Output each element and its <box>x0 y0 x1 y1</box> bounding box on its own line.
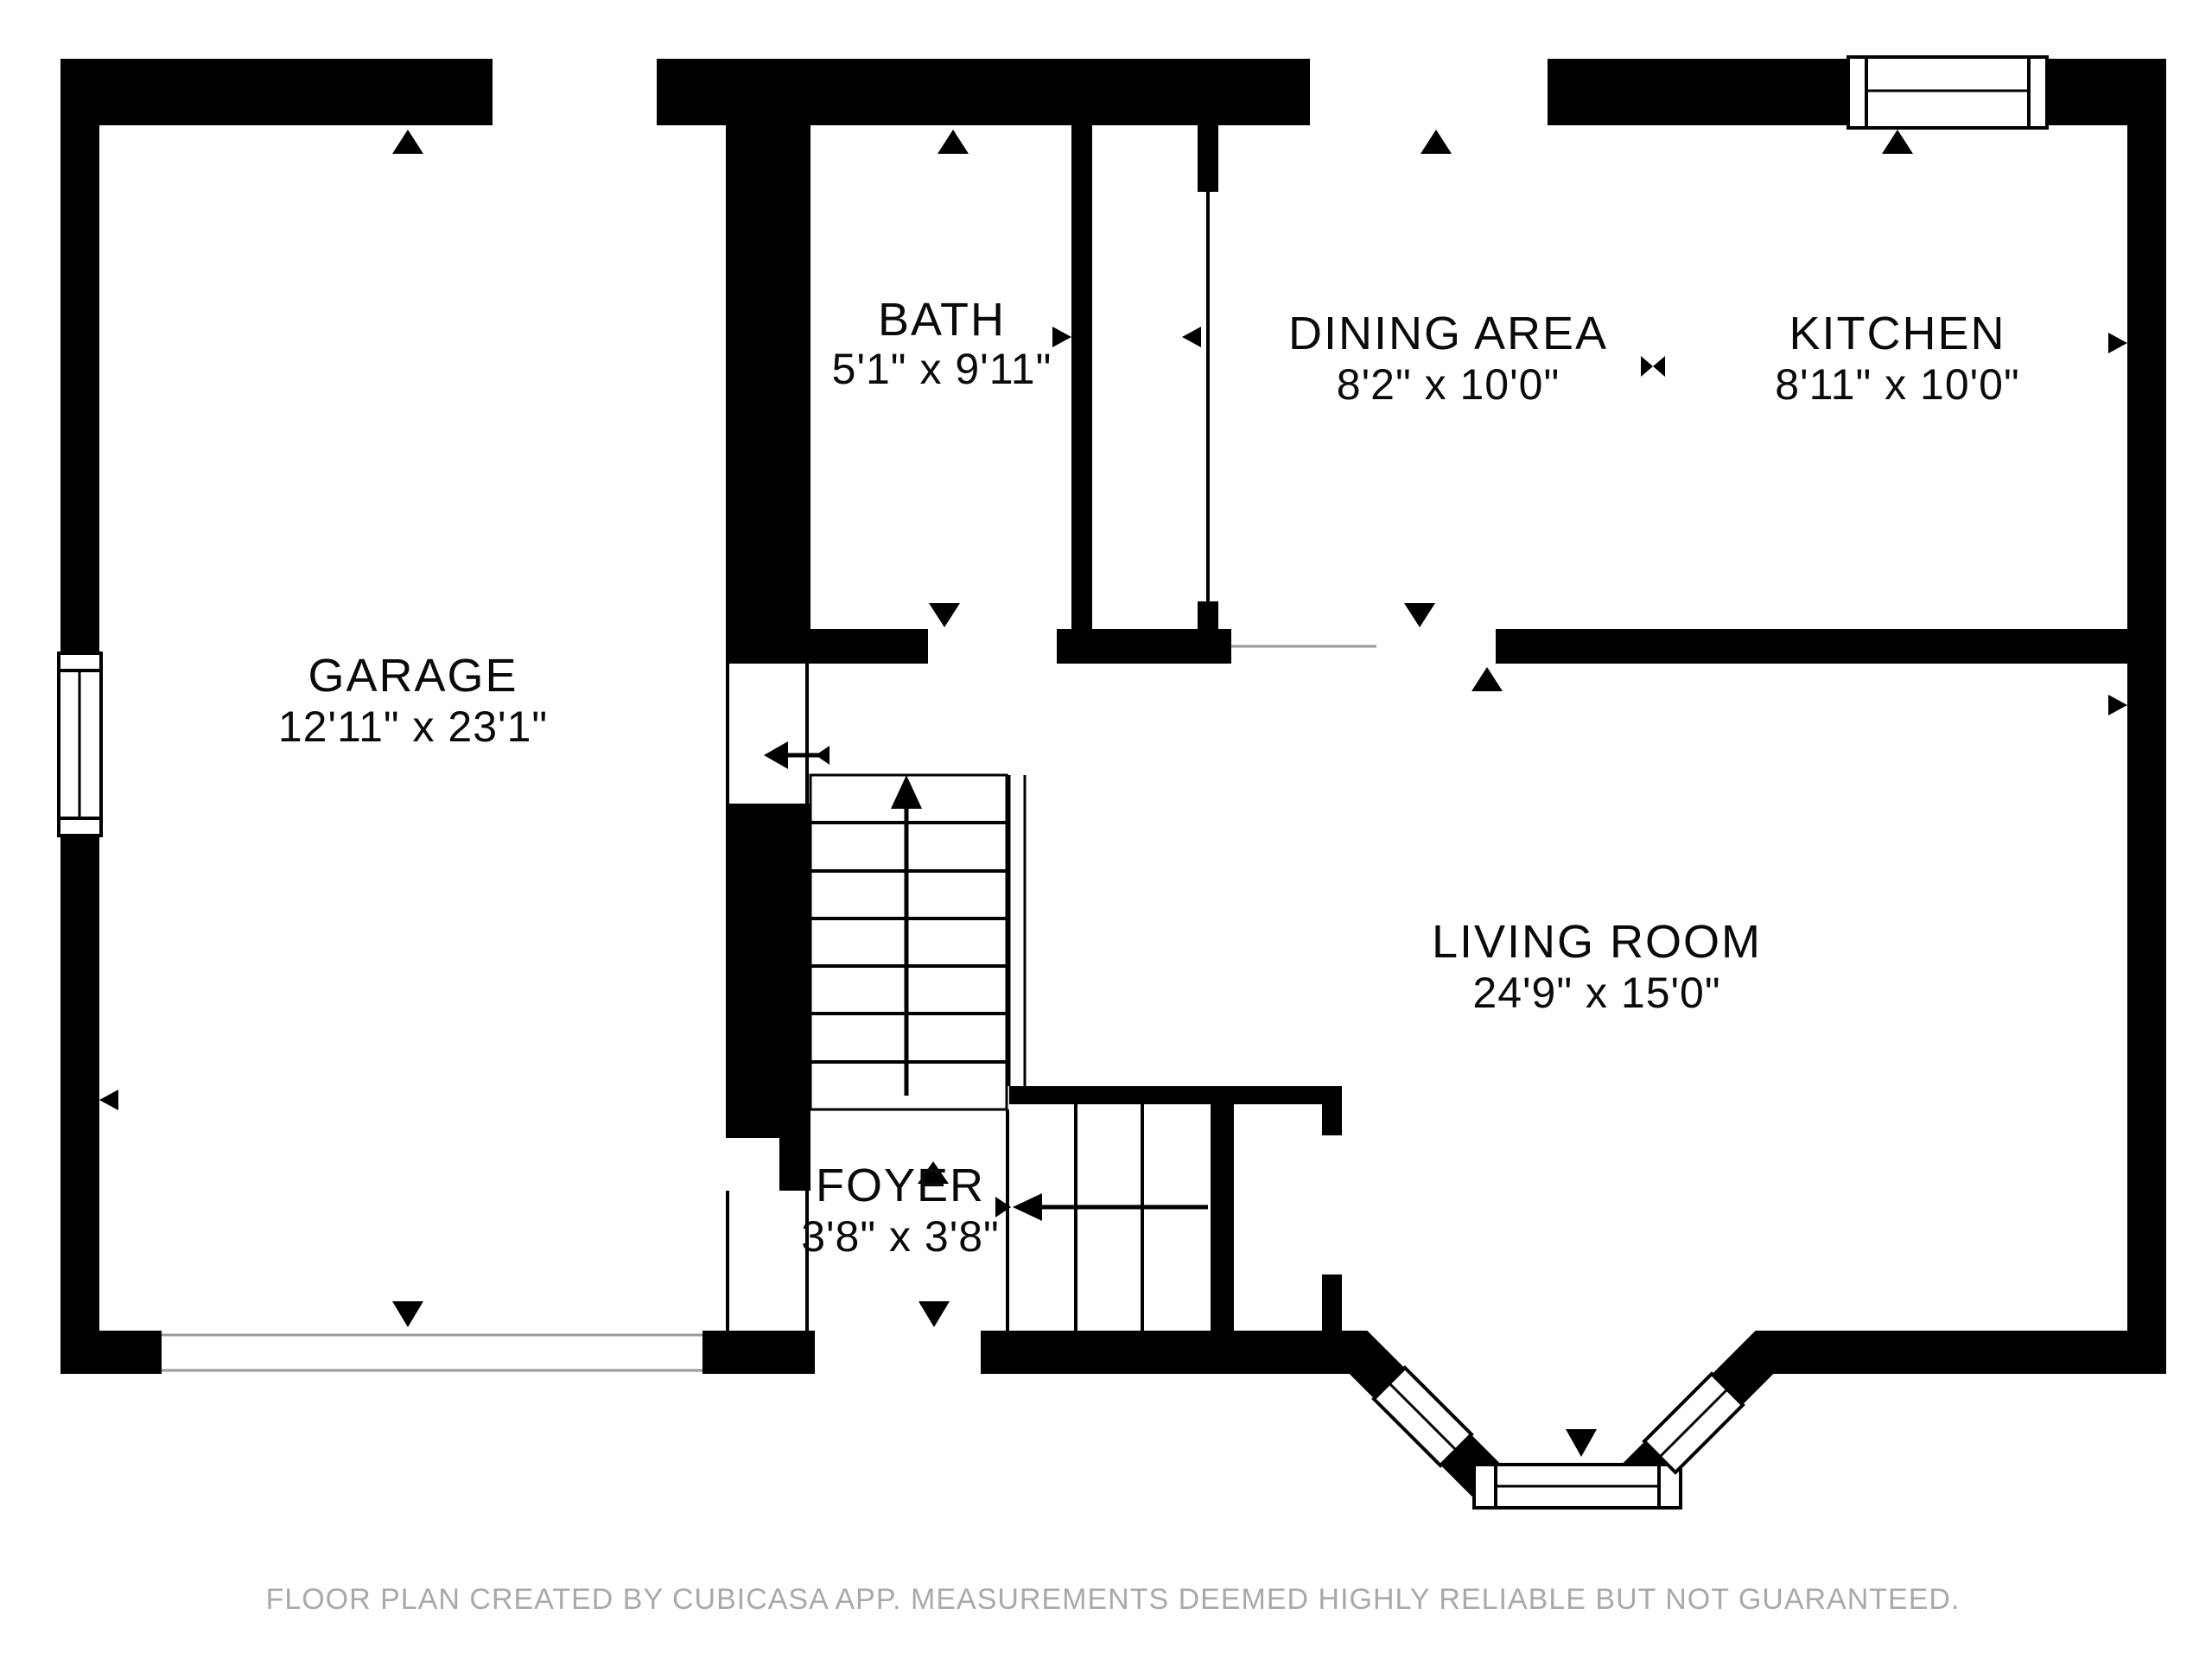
bath-left-wall <box>726 125 810 629</box>
kitchen-window <box>1848 57 2047 128</box>
room-label-kitchen: KITCHEN <box>1789 308 2005 359</box>
mid-wall-dining <box>1060 629 1231 664</box>
top-wall-bath-dining <box>657 59 1310 125</box>
room-dimensions-garage: 12'11" x 23'1" <box>278 702 548 751</box>
bay-window <box>1374 1368 1743 1508</box>
marker-dining-divider <box>1182 327 1201 347</box>
room-label-bath: BATH <box>878 294 1006 346</box>
mid-wall-bath <box>726 629 925 664</box>
bath-right-wall <box>1071 125 1092 629</box>
stair-up-arrow-head <box>891 775 922 809</box>
disclaimer-text: FLOOR PLAN CREATED BY CUBICASA APP. MEAS… <box>266 1583 1961 1616</box>
closet-right-wall-bottom <box>1322 1276 1342 1331</box>
marker-bath-right <box>1052 327 1071 347</box>
mid-wall-kitchen <box>1496 629 2127 664</box>
staircase-lower-flight <box>1076 1104 1142 1331</box>
garage-door-arrow-head <box>764 741 788 769</box>
triangle-front-door <box>918 1301 950 1327</box>
room-label-garage: GARAGE <box>308 650 518 702</box>
triangle-dining-opening-down <box>1404 603 1435 627</box>
triangle-top-patio-opening <box>1421 130 1452 154</box>
triangle-top-bath <box>938 130 969 154</box>
room-dimensions-kitchen: 8'11" x 10'0" <box>1775 360 2020 409</box>
triangle-dining-opening-up <box>1471 667 1503 691</box>
triangle-bay-window <box>1566 1429 1597 1457</box>
staircase-upper-flight <box>810 775 1025 1109</box>
garage-window <box>59 653 101 836</box>
room-label-foyer: FOYER <box>816 1160 985 1211</box>
triangle-garage-door <box>392 1301 423 1327</box>
stair-closet-top-wall <box>1009 1086 1342 1104</box>
room-label-living: LIVING ROOM <box>1432 916 1762 968</box>
floor-plan-canvas: GARAGE12'11" x 23'1"BATH5'1" x 9'11"DINI… <box>0 0 2212 1659</box>
room-dimensions-foyer: 3'8" x 3'8" <box>801 1212 1000 1261</box>
triangle-bath-door <box>929 603 960 627</box>
garage-overhead-door <box>162 1335 702 1370</box>
marker-living-right-wall <box>2108 695 2127 715</box>
top-wall-garage <box>60 59 493 125</box>
marker-kitchen-right-wall <box>2108 333 2127 353</box>
garage-door-arrow-small <box>816 746 829 765</box>
room-dimensions-dining: 8'2" x 10'0" <box>1337 360 1560 409</box>
closet-left-wall <box>1211 1104 1234 1331</box>
dining-divider-stub-top <box>1198 125 1218 192</box>
room-dimensions-bath: 5'1" x 9'11" <box>832 345 1052 393</box>
marker-dining-kitchen-right <box>1653 356 1665 377</box>
room-dimensions-living: 24'9" x 15'0" <box>1472 969 1720 1017</box>
foyer-door-arrow-head <box>1013 1193 1042 1221</box>
closet-right-wall-top <box>1322 1104 1342 1134</box>
right-wall <box>2127 59 2166 1374</box>
room-labels: GARAGE12'11" x 23'1"BATH5'1" x 9'11"DINI… <box>278 294 2020 1261</box>
marker-dining-kitchen-left <box>1641 356 1653 377</box>
garage-foyer-wall-step <box>779 1138 810 1191</box>
dining-divider-stub-bottom <box>1198 601 1218 629</box>
exterior-walls <box>60 59 2166 1486</box>
triangle-kitchen-window <box>1882 130 1913 154</box>
garage-foyer-wall <box>726 804 810 1138</box>
marker-garage-left-wall <box>99 1090 118 1110</box>
window-frame <box>1848 57 2047 128</box>
triangle-top-garage <box>392 130 423 154</box>
room-label-dining: DINING AREA <box>1288 308 1608 359</box>
